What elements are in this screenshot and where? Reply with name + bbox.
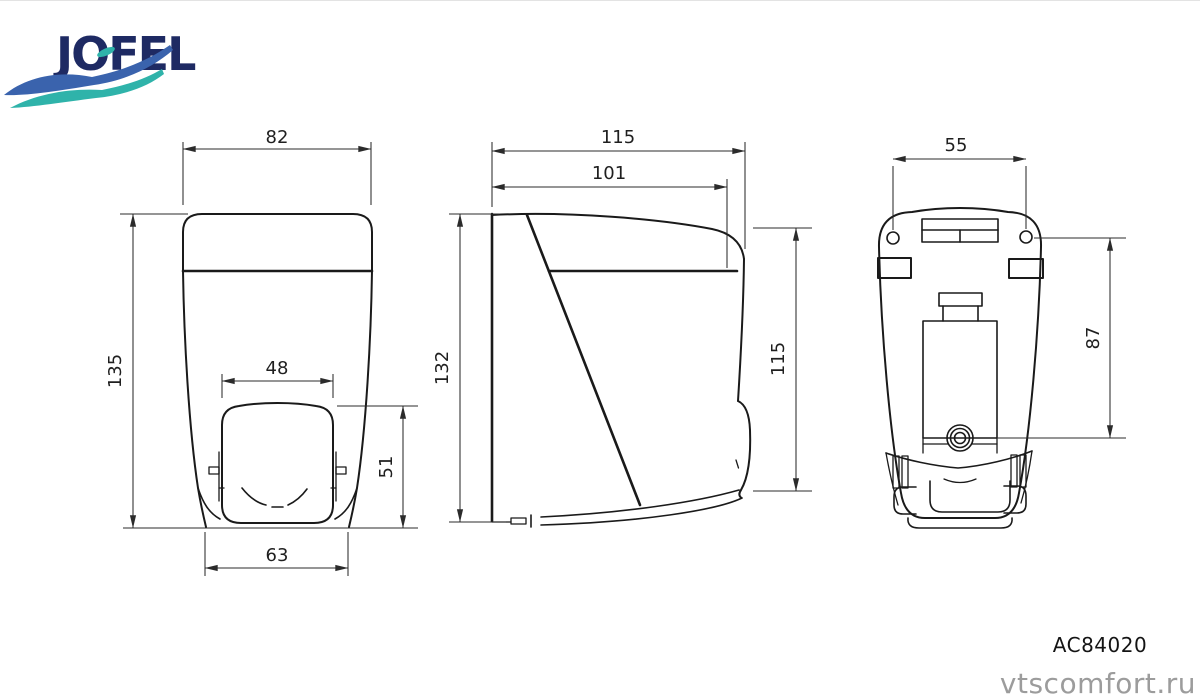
front-push-button <box>222 403 333 523</box>
front-button-smile-mark <box>242 488 307 507</box>
dim-label-front-width-bottom: 63 <box>266 545 289 566</box>
dim-side-height: 132 <box>432 214 506 522</box>
side-button-bump <box>738 401 750 498</box>
back-bottom-cap <box>908 518 1012 528</box>
dim-front-button-width: 48 <box>222 358 333 398</box>
dim-back-hole-spacing: 55 <box>893 135 1026 230</box>
dim-front-width-bottom: 63 <box>205 532 348 576</box>
back-mount-hole-left <box>887 232 899 244</box>
back-view: 55 87 <box>878 135 1126 528</box>
side-diagonal-line <box>527 215 640 505</box>
dim-back-hole-to-outlet: 87 <box>997 238 1126 438</box>
dim-side-depth-total: 115 <box>492 127 745 249</box>
side-right-edge <box>738 259 744 401</box>
dim-label-side-depth-body: 101 <box>592 163 626 184</box>
dim-label-side-height: 132 <box>432 351 453 385</box>
jofel-logo: JOFEL <box>4 27 196 108</box>
back-window-right <box>1009 259 1043 278</box>
product-code: AC84020 <box>1020 633 1180 657</box>
side-bump-notch <box>736 460 739 468</box>
dim-label-front-button-height: 51 <box>376 456 397 479</box>
spec-sheet-page: JOFEL 8 <box>0 0 1200 700</box>
dim-label-front-height: 135 <box>105 354 126 388</box>
dim-front-button-height: 51 <box>337 406 418 528</box>
back-mount-hole-right <box>1020 231 1032 243</box>
side-base-block <box>511 518 526 524</box>
back-mount-plate <box>922 219 998 242</box>
dim-label-back-hole-to-outlet: 87 <box>1083 327 1104 350</box>
dim-label-front-button-width: 48 <box>266 358 289 379</box>
back-window-left <box>878 258 911 278</box>
dim-label-side-front-height: 115 <box>768 342 789 376</box>
dim-front-width-top: 82 <box>183 127 371 205</box>
watermark: vtscomfort.ru <box>1000 667 1196 700</box>
side-view: 115 101 132 115 <box>432 127 812 527</box>
dim-side-front-height: 115 <box>753 228 812 491</box>
back-lever-mechanism <box>886 451 1032 514</box>
dim-label-side-depth-total: 115 <box>601 127 635 148</box>
side-lever-bottom-edge <box>541 498 742 525</box>
dim-label-front-width-top: 82 <box>266 127 289 148</box>
front-view: 82 135 48 51 63 <box>105 127 418 576</box>
technical-drawing-canvas: JOFEL 8 <box>0 1 1200 700</box>
dim-label-back-hole-spacing: 55 <box>945 135 968 156</box>
dim-front-height: 135 <box>105 214 188 528</box>
